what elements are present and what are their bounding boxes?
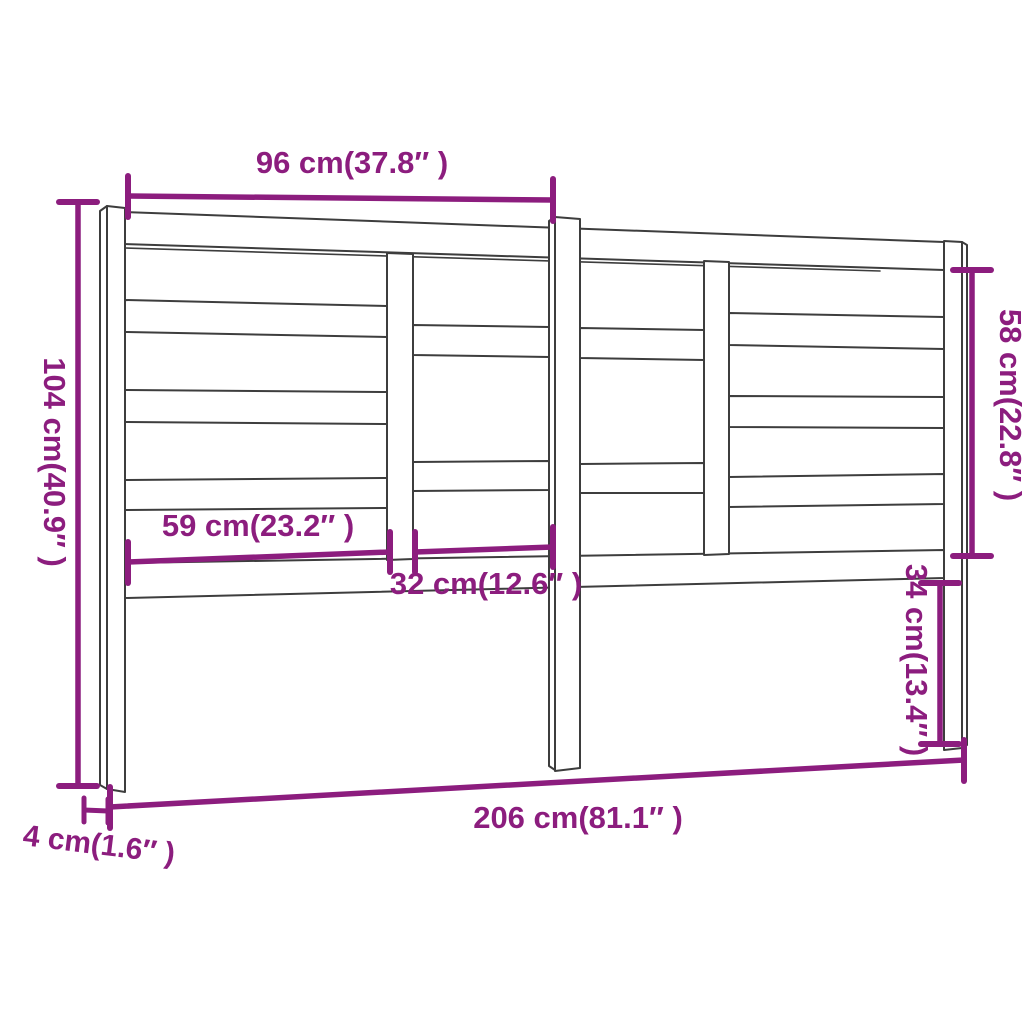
dimension-line [84, 810, 108, 811]
right-post-side-face [962, 242, 967, 748]
slat [125, 300, 387, 337]
left-post-side-face [100, 206, 107, 789]
center-post [555, 217, 580, 771]
top-rail [125, 212, 944, 270]
dimension-leg-depth [84, 798, 108, 823]
left-post [107, 206, 125, 792]
slat [729, 396, 944, 428]
dimension-right-lower-height-label: 34 cm(13.4″ ) [899, 564, 934, 756]
right-post [944, 241, 962, 750]
dimension-total-width-label: 206 cm(81.1″ ) [473, 800, 683, 835]
dimension-line [415, 547, 553, 552]
slat [413, 325, 549, 357]
slat [729, 474, 944, 507]
headboard-dimension-diagram: 96 cm(37.8″ ) 104 cm(40.9″ ) 58 cm(22.8″… [0, 0, 1024, 1024]
dimension-left-slat-width-label: 59 cm(23.2″ ) [162, 508, 354, 543]
dimension-leg-depth-label: 4 cm(1.6″ ) [21, 819, 177, 870]
dimension-right-upper-height-label: 58 cm(22.8″ ) [993, 309, 1024, 501]
slat [580, 463, 704, 493]
slat [580, 328, 704, 360]
diagram-canvas: 96 cm(37.8″ ) 104 cm(40.9″ ) 58 cm(22.8″… [0, 0, 1024, 1024]
slat [729, 313, 944, 349]
dimension-line [128, 196, 553, 200]
stile-left [387, 253, 413, 560]
dimension-top-width-label: 96 cm(37.8″ ) [256, 145, 448, 180]
headboard-frame [100, 206, 967, 792]
dimension-left-height-label: 104 cm(40.9″ ) [37, 357, 72, 567]
dimension-middle-slat-width-label: 32 cm(12.6″ ) [390, 566, 582, 601]
slat [413, 461, 549, 491]
stile-right [704, 261, 729, 555]
slat [125, 390, 387, 424]
slat [125, 478, 387, 510]
